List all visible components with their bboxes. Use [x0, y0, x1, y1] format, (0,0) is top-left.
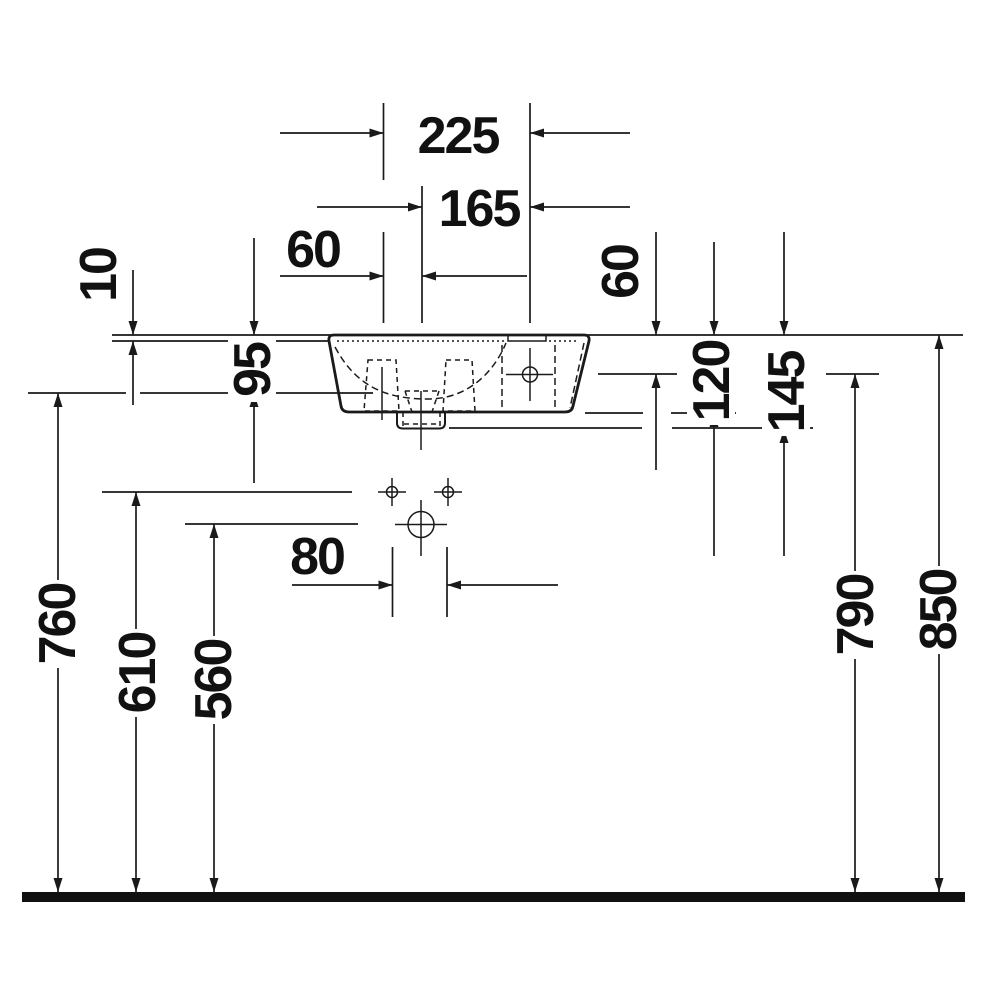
floor-line	[22, 892, 965, 902]
technical-drawing-canvas: 225 165 60 80 10 95 60	[0, 0, 1000, 1000]
dimension-145: 145	[758, 232, 816, 556]
dimension-790: 790	[827, 374, 885, 892]
dim-label-610: 610	[109, 633, 167, 714]
level-lines	[22, 335, 965, 902]
dim-label-165: 165	[439, 180, 521, 238]
dim-label-850: 850	[910, 570, 968, 651]
dim-label-10: 10	[70, 248, 128, 302]
dim-label-60-right: 60	[592, 245, 650, 299]
dimension-850: 850	[910, 335, 968, 892]
basin-outline	[329, 335, 589, 412]
dimension-760: 760	[29, 393, 87, 892]
dimension-10: 10	[70, 243, 133, 405]
dim-label-760: 760	[29, 584, 87, 665]
dim-label-95: 95	[224, 342, 282, 397]
bowl-hidden-profile	[335, 343, 506, 399]
dimension-drawing: 225 165 60 80 10 95 60	[0, 0, 1000, 1000]
tap-deck-recess	[508, 336, 546, 341]
dimension-95: 95	[224, 238, 282, 483]
dimension-610: 610	[109, 492, 167, 892]
basin-side-view	[329, 335, 589, 556]
dim-label-560: 560	[185, 640, 243, 721]
dim-label-145: 145	[758, 351, 816, 433]
dim-label-60-left: 60	[286, 221, 340, 279]
dim-label-120: 120	[683, 341, 741, 422]
drain-funnel-left	[405, 391, 412, 412]
dimension-60-right: 60	[592, 232, 656, 470]
dim-label-790: 790	[827, 575, 885, 656]
wall-markers	[378, 478, 462, 538]
dimension-560: 560	[185, 524, 243, 892]
dimension-120: 120	[683, 242, 741, 556]
drain-funnel-right	[432, 391, 439, 412]
dim-label-225: 225	[418, 107, 500, 165]
dimension-225: 225	[280, 107, 630, 165]
fixing-slot-right	[443, 360, 475, 411]
dim-label-80: 80	[290, 528, 344, 586]
dimension-165: 165	[317, 180, 630, 238]
